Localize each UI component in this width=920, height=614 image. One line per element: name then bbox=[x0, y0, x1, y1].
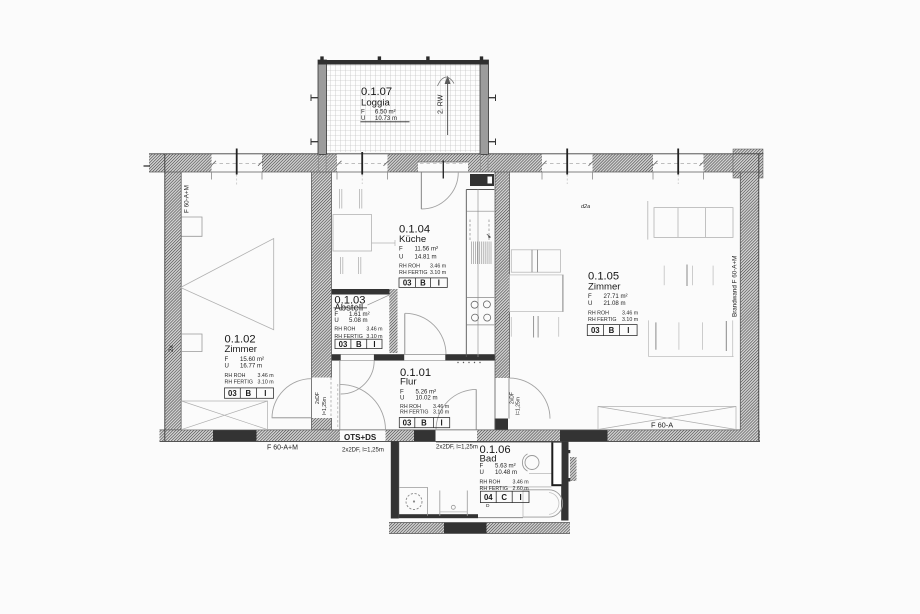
svg-text:3.10 m: 3.10 m bbox=[622, 317, 639, 323]
svg-text:RH ROH: RH ROH bbox=[399, 263, 420, 269]
svg-text:F 60-A+M: F 60-A+M bbox=[267, 445, 298, 452]
svg-text:RH ROH: RH ROH bbox=[588, 310, 609, 316]
svg-text:2. RW: 2. RW bbox=[438, 94, 445, 114]
svg-text:27.71 m²: 27.71 m² bbox=[604, 293, 628, 300]
svg-text:RH FERTIG: RH FERTIG bbox=[588, 317, 616, 323]
svg-text:B: B bbox=[420, 279, 426, 288]
svg-text:U: U bbox=[334, 317, 338, 324]
svg-text:3.10 m: 3.10 m bbox=[433, 409, 450, 415]
svg-text:I: I bbox=[627, 326, 629, 335]
svg-text:D: D bbox=[486, 503, 490, 509]
svg-text:B: B bbox=[609, 326, 615, 335]
svg-text:14.81 m: 14.81 m bbox=[415, 253, 437, 260]
svg-text:RH ROH: RH ROH bbox=[334, 326, 355, 332]
svg-text:I: I bbox=[441, 418, 443, 427]
svg-text:RH FERTIG: RH FERTIG bbox=[400, 409, 428, 415]
svg-text:U: U bbox=[588, 300, 592, 307]
svg-text:B: B bbox=[356, 340, 362, 349]
svg-text:F 60-A+M: F 60-A+M bbox=[184, 185, 191, 213]
svg-text:21.08 m: 21.08 m bbox=[604, 300, 626, 307]
svg-text:RH ROH: RH ROH bbox=[225, 373, 246, 379]
svg-text:U: U bbox=[480, 469, 484, 476]
svg-text:03: 03 bbox=[339, 340, 348, 349]
svg-text:RH ROH: RH ROH bbox=[480, 480, 501, 486]
svg-text:3.46 m: 3.46 m bbox=[513, 480, 530, 486]
svg-text:I: I bbox=[264, 389, 266, 398]
svg-text:3.46 m: 3.46 m bbox=[258, 373, 275, 379]
svg-text:F 60-A: F 60-A bbox=[651, 421, 673, 430]
svg-text:RH FERTIG: RH FERTIG bbox=[225, 379, 253, 385]
svg-text:U: U bbox=[400, 395, 404, 402]
svg-text:Loggia: Loggia bbox=[361, 98, 390, 109]
svg-text:B: B bbox=[245, 389, 251, 398]
svg-text:04: 04 bbox=[484, 493, 493, 502]
svg-text:Küche: Küche bbox=[399, 234, 426, 245]
svg-text:03: 03 bbox=[591, 326, 600, 335]
svg-text:U: U bbox=[399, 253, 403, 260]
svg-text:U: U bbox=[225, 363, 229, 370]
svg-text:C: C bbox=[501, 493, 507, 502]
svg-text:3.10 m: 3.10 m bbox=[258, 379, 275, 385]
svg-text:B: B bbox=[421, 418, 427, 427]
svg-text:d2a: d2a bbox=[581, 204, 590, 210]
svg-text:03: 03 bbox=[228, 389, 237, 398]
svg-text:I: I bbox=[373, 340, 375, 349]
svg-text:2x2DF, l=1,25m: 2x2DF, l=1,25m bbox=[342, 448, 384, 454]
svg-text:3.46 m: 3.46 m bbox=[430, 263, 447, 269]
svg-text:11.56 m²: 11.56 m² bbox=[415, 246, 439, 253]
svg-text:l=1,25m: l=1,25m bbox=[322, 397, 328, 415]
svg-text:Zimmer: Zimmer bbox=[225, 344, 258, 355]
svg-text:10.02 m: 10.02 m bbox=[416, 395, 438, 402]
svg-text:10.73 m: 10.73 m bbox=[375, 115, 397, 122]
svg-text:RH FERTIG: RH FERTIG bbox=[399, 270, 427, 276]
svg-text:16.77 m: 16.77 m bbox=[240, 363, 262, 370]
svg-text:3.10 m: 3.10 m bbox=[430, 270, 447, 276]
svg-text:OTS+DS: OTS+DS bbox=[344, 433, 377, 442]
svg-text:F: F bbox=[588, 293, 592, 300]
svg-text:2x2DF, l=1,25m: 2x2DF, l=1,25m bbox=[436, 445, 478, 451]
svg-text:U: U bbox=[361, 115, 365, 122]
svg-text:3.46 m: 3.46 m bbox=[366, 326, 383, 332]
svg-text:Zimmer: Zimmer bbox=[588, 282, 621, 293]
svg-text:3.46 m: 3.46 m bbox=[622, 310, 639, 316]
svg-text:l=1,25m: l=1,25m bbox=[516, 397, 522, 415]
svg-text:5.08 m: 5.08 m bbox=[349, 317, 368, 324]
svg-text:2xDF: 2xDF bbox=[315, 392, 321, 404]
svg-text:03: 03 bbox=[403, 279, 412, 288]
svg-text:Flur: Flur bbox=[400, 376, 417, 387]
svg-text:F: F bbox=[399, 246, 403, 253]
svg-text:I: I bbox=[520, 493, 522, 502]
svg-text:Brandwand F 60-A+M: Brandwand F 60-A+M bbox=[732, 256, 739, 317]
svg-text:2x: 2x bbox=[168, 344, 175, 352]
svg-text:03: 03 bbox=[403, 418, 412, 427]
svg-text:10.48 m: 10.48 m bbox=[495, 469, 517, 476]
svg-text:0.1.07: 0.1.07 bbox=[361, 86, 392, 98]
svg-text:I: I bbox=[438, 279, 440, 288]
